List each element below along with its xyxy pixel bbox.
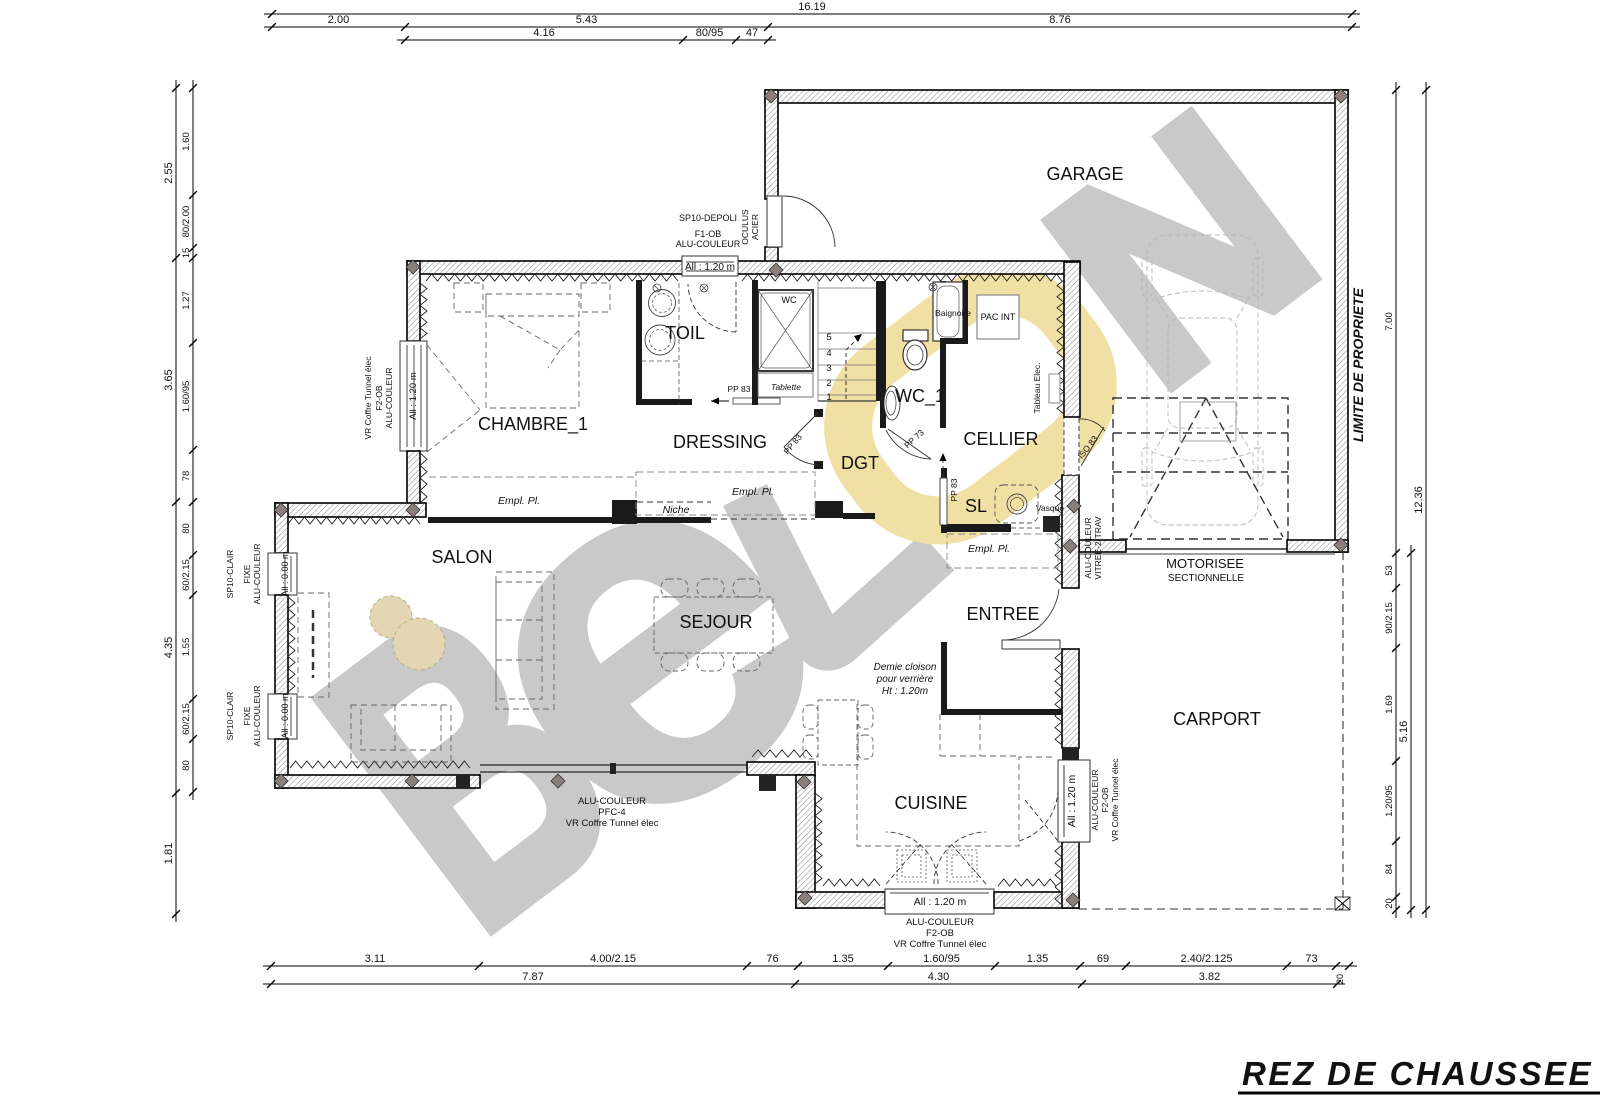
svg-text:5.43: 5.43 xyxy=(576,14,597,26)
svg-text:SEJOUR: SEJOUR xyxy=(679,612,752,632)
svg-text:15: 15 xyxy=(181,248,192,259)
svg-text:FIXE: FIXE xyxy=(242,564,252,583)
svg-text:80/2.00: 80/2.00 xyxy=(181,206,192,238)
svg-text:76: 76 xyxy=(766,953,778,965)
svg-text:VR Coffre Tunnel élec: VR Coffre Tunnel élec xyxy=(894,939,987,950)
svg-text:PAC INT: PAC INT xyxy=(981,312,1016,322)
svg-text:8.76: 8.76 xyxy=(1049,14,1070,26)
svg-text:60/2.15: 60/2.15 xyxy=(181,703,192,735)
svg-text:1.27: 1.27 xyxy=(181,291,192,310)
svg-text:ALU-COULEUR: ALU-COULEUR xyxy=(1083,518,1093,579)
svg-text:2.00: 2.00 xyxy=(328,14,349,26)
svg-text:1.35: 1.35 xyxy=(1027,953,1048,965)
svg-text:Tablette: Tablette xyxy=(771,382,801,392)
svg-text:CHAMBRE_1: CHAMBRE_1 xyxy=(478,414,588,435)
svg-text:SP10-CLAIR: SP10-CLAIR xyxy=(225,550,235,599)
svg-text:ALU-COULEUR: ALU-COULEUR xyxy=(906,917,974,928)
svg-text:3.65: 3.65 xyxy=(163,369,175,390)
svg-text:2.40/2.125: 2.40/2.125 xyxy=(1181,953,1233,965)
svg-text:ALU-COULEUR: ALU-COULEUR xyxy=(384,368,394,429)
svg-text:DGT: DGT xyxy=(841,453,879,473)
svg-text:60/2.15: 60/2.15 xyxy=(181,559,192,591)
svg-text:ALU-COULEUR: ALU-COULEUR xyxy=(676,239,741,249)
svg-text:ENTREE: ENTREE xyxy=(966,604,1039,624)
svg-text:VR Coffre Tunnel élec: VR Coffre Tunnel élec xyxy=(1110,758,1120,842)
svg-text:7.00: 7.00 xyxy=(1384,312,1395,331)
svg-text:2: 2 xyxy=(826,378,831,389)
svg-text:1: 1 xyxy=(826,392,831,403)
svg-text:80: 80 xyxy=(181,760,192,771)
svg-text:WC_1: WC_1 xyxy=(895,386,945,407)
svg-text:F2-OB: F2-OB xyxy=(1100,787,1110,812)
svg-text:OCULUS: OCULUS xyxy=(740,209,750,245)
svg-text:1.60/95: 1.60/95 xyxy=(923,953,960,965)
svg-text:20: 20 xyxy=(1384,898,1395,909)
svg-text:1.20/95: 1.20/95 xyxy=(1384,785,1395,817)
svg-text:WC: WC xyxy=(782,295,797,305)
svg-text:CUISINE: CUISINE xyxy=(894,793,967,813)
svg-text:69: 69 xyxy=(1097,953,1109,965)
svg-text:PP 83: PP 83 xyxy=(727,384,750,394)
svg-text:1.60: 1.60 xyxy=(181,132,192,151)
svg-text:1.81: 1.81 xyxy=(163,843,175,864)
svg-text:Tableau Elec.: Tableau Elec. xyxy=(1032,362,1042,413)
svg-text:16.19: 16.19 xyxy=(798,1,826,13)
svg-text:3.82: 3.82 xyxy=(1199,971,1220,983)
svg-text:80: 80 xyxy=(181,523,192,534)
svg-text:All : 1.20 m: All : 1.20 m xyxy=(914,896,967,908)
svg-text:1.55: 1.55 xyxy=(181,638,192,657)
svg-text:TOIL: TOIL xyxy=(665,323,705,343)
svg-text:VR Coffre Tunnel élec: VR Coffre Tunnel élec xyxy=(363,356,373,440)
svg-text:1.69: 1.69 xyxy=(1384,695,1395,714)
svg-text:Demie cloison: Demie cloison xyxy=(874,662,937,673)
svg-text:F2-OB: F2-OB xyxy=(374,385,384,410)
svg-text:47: 47 xyxy=(746,27,758,39)
svg-text:FIXE: FIXE xyxy=(242,706,252,725)
svg-text:Empl. Pl.: Empl. Pl. xyxy=(732,486,774,498)
svg-text:Empl. Pl.: Empl. Pl. xyxy=(498,495,540,507)
svg-text:SALON: SALON xyxy=(431,547,492,567)
svg-text:12.36: 12.36 xyxy=(1413,486,1425,514)
svg-text:CELLIER: CELLIER xyxy=(963,429,1038,449)
svg-text:2.55: 2.55 xyxy=(163,162,175,183)
svg-text:All : 0.00 m: All : 0.00 m xyxy=(280,693,290,738)
svg-text:ALU-COULEUR: ALU-COULEUR xyxy=(1090,770,1100,831)
svg-text:VITREE-2-TRAV: VITREE-2-TRAV xyxy=(1093,516,1103,579)
svg-text:4.35: 4.35 xyxy=(163,637,175,658)
svg-text:ALU-COULEUR: ALU-COULEUR xyxy=(252,686,262,747)
svg-text:ACIER: ACIER xyxy=(750,214,760,240)
svg-text:80/95: 80/95 xyxy=(696,27,724,39)
svg-text:3: 3 xyxy=(826,363,831,374)
svg-text:Empl. Pl.: Empl. Pl. xyxy=(968,543,1010,555)
svg-text:All : 1.20 m: All : 1.20 m xyxy=(1066,774,1078,827)
svg-text:SP10-DEPOLI: SP10-DEPOLI xyxy=(679,213,737,223)
svg-text:4.00/2.15: 4.00/2.15 xyxy=(590,953,636,965)
svg-text:90/2.15: 90/2.15 xyxy=(1384,602,1395,634)
svg-text:4.30: 4.30 xyxy=(928,971,949,983)
svg-text:84: 84 xyxy=(1384,864,1395,875)
svg-text:53: 53 xyxy=(1384,565,1395,576)
svg-text:MOTORISEE: MOTORISEE xyxy=(1166,556,1244,571)
svg-text:73: 73 xyxy=(1305,953,1317,965)
svg-text:SECTIONNELLE: SECTIONNELLE xyxy=(1168,573,1244,584)
svg-text:ALU-COULEUR: ALU-COULEUR xyxy=(252,544,262,605)
svg-text:78: 78 xyxy=(181,471,192,482)
svg-text:All : 1.20 m: All : 1.20 m xyxy=(408,372,419,420)
svg-text:4: 4 xyxy=(826,348,831,359)
svg-text:1.35: 1.35 xyxy=(832,953,853,965)
svg-text:PP 83: PP 83 xyxy=(949,478,959,501)
svg-text:VR Coffre Tunnel élec: VR Coffre Tunnel élec xyxy=(566,818,659,829)
svg-text:Vasque: Vasque xyxy=(1036,503,1064,513)
svg-text:5.16: 5.16 xyxy=(1398,721,1410,742)
svg-text:1.60/95: 1.60/95 xyxy=(181,381,192,413)
svg-text:CARPORT: CARPORT xyxy=(1173,709,1261,729)
svg-text:F1-OB: F1-OB xyxy=(695,229,722,239)
svg-text:Niche: Niche xyxy=(663,504,690,516)
svg-text:20: 20 xyxy=(1335,974,1345,984)
svg-text:3.11: 3.11 xyxy=(365,953,386,965)
svg-text:All : 0.00 m: All : 0.00 m xyxy=(280,551,290,596)
svg-text:Ht : 1.20m: Ht : 1.20m xyxy=(882,686,928,697)
svg-text:GARAGE: GARAGE xyxy=(1046,164,1123,184)
svg-text:SP10-CLAIR: SP10-CLAIR xyxy=(225,692,235,741)
svg-text:PFC-4: PFC-4 xyxy=(598,807,625,818)
svg-text:DRESSING: DRESSING xyxy=(673,432,767,452)
svg-text:SL: SL xyxy=(965,496,987,516)
svg-text:ALU-COULEUR: ALU-COULEUR xyxy=(578,796,646,807)
svg-text:LIMITE DE PROPRIETE: LIMITE DE PROPRIETE xyxy=(1350,287,1366,442)
svg-text:pour verrière: pour verrière xyxy=(876,674,934,685)
svg-text:4.16: 4.16 xyxy=(533,27,554,39)
svg-text:5: 5 xyxy=(826,332,831,343)
svg-text:All : 1.20 m: All : 1.20 m xyxy=(685,262,735,273)
svg-text:F2-OB: F2-OB xyxy=(926,928,954,939)
svg-text:REZ DE CHAUSSEE: REZ DE CHAUSSEE xyxy=(1242,1055,1593,1092)
svg-text:7.87: 7.87 xyxy=(522,971,543,983)
